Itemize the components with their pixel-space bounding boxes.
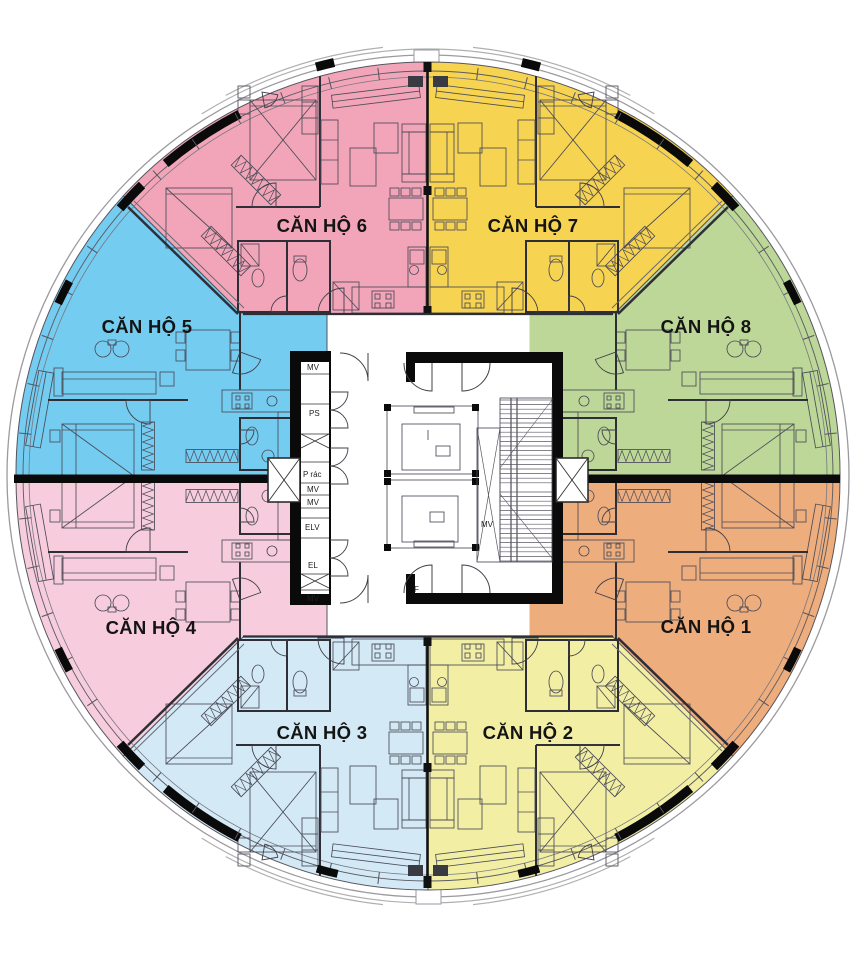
svg-text:CĂN HỘ 5: CĂN HỘ 5 bbox=[102, 316, 193, 337]
svg-text:CĂN HỘ 4: CĂN HỘ 4 bbox=[106, 617, 197, 638]
svg-text:CĂN HỘ 7: CĂN HỘ 7 bbox=[488, 215, 579, 236]
svg-text:EL: EL bbox=[308, 561, 318, 570]
svg-text:CĂN HỘ 6: CĂN HỘ 6 bbox=[277, 215, 368, 236]
svg-text:MV: MV bbox=[307, 594, 320, 603]
svg-text:F: F bbox=[414, 585, 419, 594]
svg-text:MV: MV bbox=[307, 498, 320, 507]
svg-text:CĂN HỘ 8: CĂN HỘ 8 bbox=[661, 316, 752, 337]
svg-text:MV: MV bbox=[307, 363, 320, 372]
svg-text:MV: MV bbox=[481, 520, 494, 529]
svg-text:CĂN HỘ 2: CĂN HỘ 2 bbox=[483, 722, 574, 743]
svg-text:ELV: ELV bbox=[305, 523, 320, 532]
svg-text:CĂN HỘ 1: CĂN HỘ 1 bbox=[661, 616, 752, 637]
svg-text:P rác: P rác bbox=[303, 470, 322, 479]
svg-text:PS: PS bbox=[309, 409, 320, 418]
svg-text:CĂN HỘ 3: CĂN HỘ 3 bbox=[277, 722, 368, 743]
svg-text:MV: MV bbox=[307, 485, 320, 494]
